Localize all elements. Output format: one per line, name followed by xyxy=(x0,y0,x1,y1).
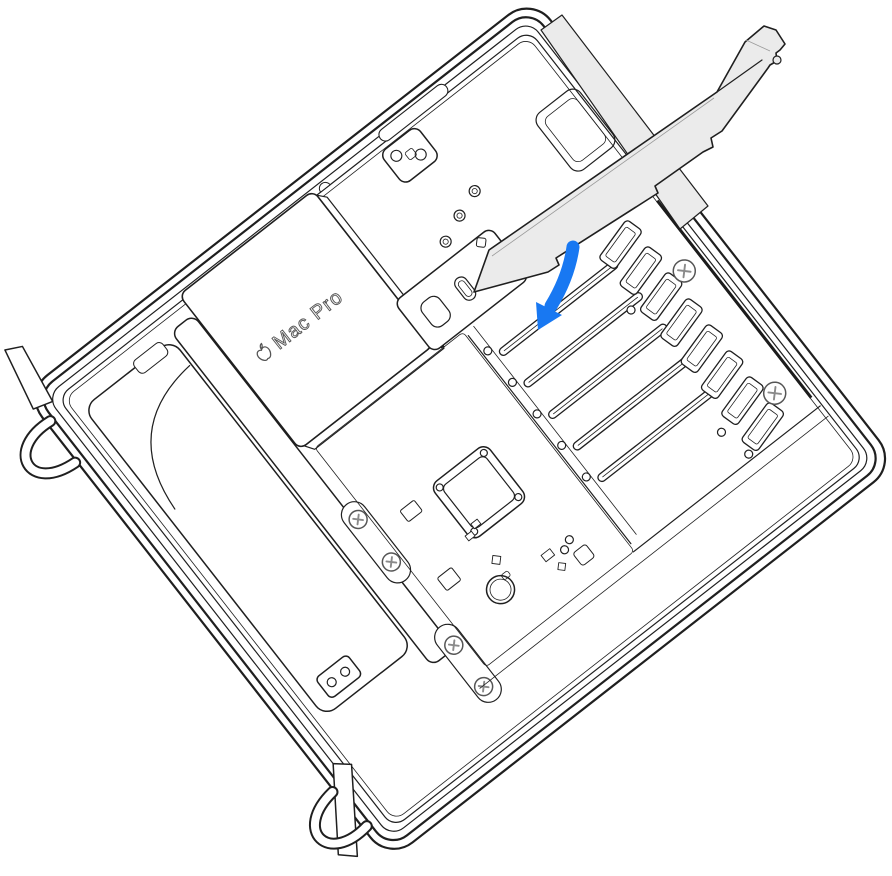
bracket-notch xyxy=(773,56,781,64)
illustration-canvas: Mac Pro xyxy=(0,0,892,876)
mac-pro-case: Mac Pro xyxy=(0,0,892,876)
mac-pro-pcie-install-illustration: Mac Pro xyxy=(0,0,892,876)
board-component xyxy=(492,555,501,564)
board-component xyxy=(558,563,566,571)
floor-cutout xyxy=(476,237,486,247)
